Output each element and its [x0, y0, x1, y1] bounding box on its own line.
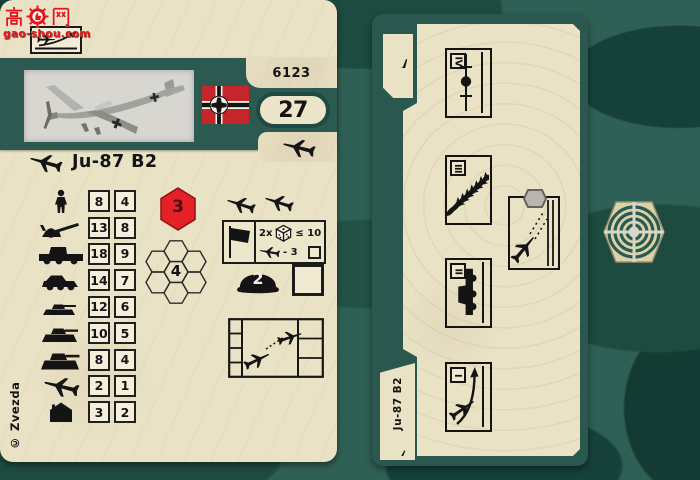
- unit-name: Ju-87 B2: [72, 152, 157, 172]
- flight-path-icon: [447, 50, 489, 115]
- artillery-icon: [38, 216, 88, 240]
- logo-char-wang-icon: [50, 5, 72, 28]
- unit-card-front: 6123: [0, 0, 337, 462]
- table-row: 13 8: [38, 214, 138, 240]
- table-row: 8 4: [38, 346, 138, 372]
- light-tank-icon: [38, 295, 88, 319]
- table-row: 18 9: [38, 241, 138, 267]
- target-token: [602, 199, 666, 265]
- phase-box-2: II: [445, 258, 492, 328]
- logo-char-gao-icon: [3, 5, 25, 28]
- movement-hex: 3: [158, 186, 198, 232]
- copyright-text: © Zvezda: [8, 346, 22, 450]
- unit-name-vertical: Ju-87 B2: [392, 377, 404, 430]
- transport-icon: [447, 260, 489, 325]
- scene: 6123: [0, 0, 700, 480]
- attack-value-reduced: 4: [114, 190, 136, 212]
- table-row: 2 1: [38, 373, 138, 399]
- table-row: 8 4: [38, 188, 138, 214]
- flag-cell: [224, 222, 256, 262]
- unit-plane-icon: [28, 149, 64, 175]
- watermark: gao-shou.com: [3, 5, 91, 40]
- attack-value-full: 13: [88, 217, 110, 239]
- range-value: 4: [142, 262, 210, 280]
- tab-plane-icon: [386, 432, 410, 456]
- attack-value-reduced: 8: [114, 217, 136, 239]
- attack-value-full: 8: [88, 349, 110, 371]
- dice-multiplier: 2x: [259, 228, 272, 239]
- range-hex-grid: 4: [142, 236, 210, 306]
- stuka-model-image: [24, 70, 194, 142]
- attack-value-full: 3: [88, 401, 110, 423]
- heavy-tank-icon: [38, 348, 88, 372]
- attack-value-reduced: 9: [114, 243, 136, 265]
- watermark-domain: gao-shou.com: [3, 28, 91, 40]
- table-row: 10 5: [38, 320, 138, 346]
- defense-value: 2: [234, 269, 282, 288]
- product-number: 6123: [272, 66, 310, 81]
- medium-tank-icon: [38, 321, 88, 345]
- infantry-icon: [38, 189, 88, 213]
- unit-title-row: Ju-87 B2: [28, 148, 308, 176]
- unit-photo: [24, 70, 194, 142]
- table-row: 12 6: [38, 294, 138, 320]
- bombs-icon: [447, 157, 489, 222]
- attack-value-full: 14: [88, 269, 110, 291]
- unit-card-back: Ju-87 B2 IV III: [372, 14, 588, 466]
- attack-value-full: 10: [88, 322, 110, 344]
- flag-icon: [226, 224, 252, 260]
- aircraft-modifier: - 3: [283, 247, 298, 258]
- attack-table: 8 4 13 8 18 9 14 7: [38, 188, 138, 426]
- attack-value-reduced: 1: [114, 375, 136, 397]
- armored-car-icon: [38, 268, 88, 292]
- dice-rule-cell: 2x ≤ 10 - 3: [256, 222, 324, 262]
- aircraft-tab: [383, 34, 413, 98]
- attack-value-full: 12: [88, 296, 110, 318]
- attack-value-reduced: 7: [114, 269, 136, 291]
- small-plane-icon: [259, 246, 281, 259]
- modifier-box: [308, 246, 321, 259]
- logo-gear-icon: [26, 5, 49, 28]
- phase-box-3: III: [445, 155, 492, 225]
- attack-value-full: 2: [88, 375, 110, 397]
- attack-value-reduced: 2: [114, 401, 136, 423]
- attack-value-reduced: 5: [114, 322, 136, 344]
- phase-box-4: IV: [445, 48, 492, 118]
- defense-helmet: 2: [234, 262, 282, 298]
- aircraft-icon: [38, 374, 88, 398]
- attack-value-full: 8: [88, 190, 110, 212]
- die-icon: [274, 224, 293, 243]
- dice-threshold: ≤ 10: [295, 228, 321, 239]
- hex-token-icon: [523, 188, 547, 209]
- defense-marker-box: [292, 264, 324, 296]
- points-badge: 27: [256, 92, 330, 128]
- german-war-flag: [202, 86, 249, 124]
- building-icon: [38, 400, 88, 424]
- points-value: 27: [278, 98, 308, 123]
- truck-icon: [38, 242, 88, 266]
- attack-value-reduced: 6: [114, 296, 136, 318]
- morale-rule-box: 2x ≤ 10 - 3: [222, 220, 326, 264]
- table-row: 3 2: [38, 399, 138, 425]
- movement-value: 3: [158, 197, 198, 217]
- air-attack-box: [508, 196, 560, 270]
- unit-name-tab: Ju-87 B2: [380, 363, 415, 460]
- takeoff-icon: [447, 364, 489, 429]
- squadron-planes-icon: [224, 192, 298, 218]
- table-row: 14 7: [38, 267, 138, 293]
- aircraft-tab-icon: [384, 34, 412, 68]
- phase-box-1: I: [445, 362, 492, 432]
- attack-value-full: 18: [88, 243, 110, 265]
- product-number-plate: 6123: [246, 58, 337, 88]
- dogfight-diagram: [228, 318, 324, 378]
- attack-value-reduced: 4: [114, 349, 136, 371]
